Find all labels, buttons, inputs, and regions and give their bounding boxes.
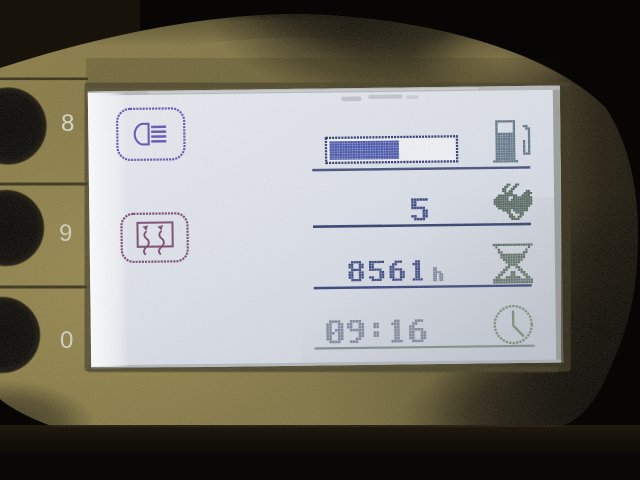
svg-text:8: 8	[61, 110, 74, 137]
svg-text:9: 9	[59, 220, 72, 247]
svg-text:0: 0	[60, 327, 73, 354]
